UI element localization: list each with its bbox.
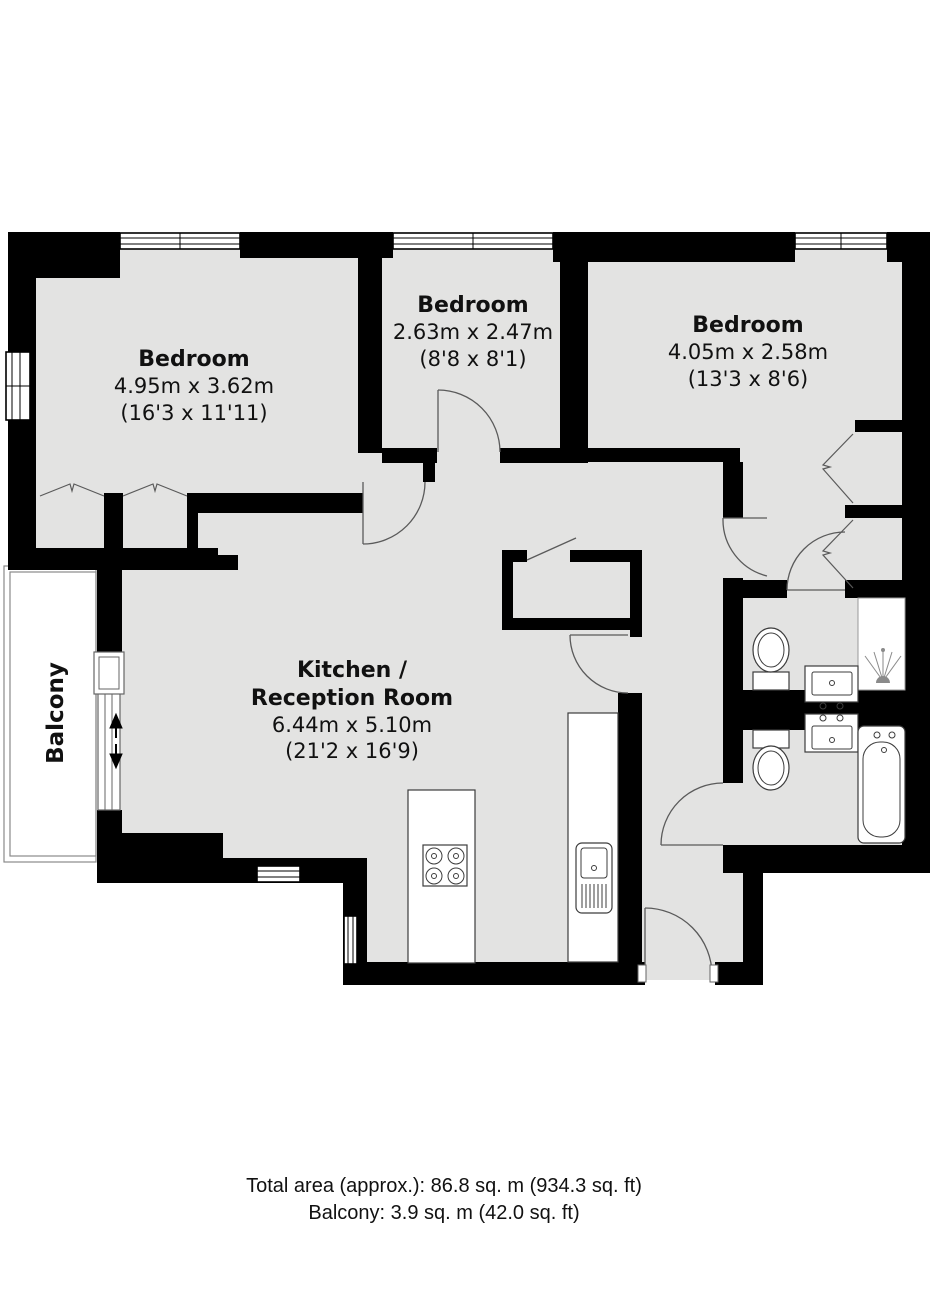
kitchen-sink-icon xyxy=(576,843,612,913)
footer: Total area (approx.): 86.8 sq. m (934.3 … xyxy=(246,1175,642,1224)
kitchen-counter xyxy=(568,713,618,962)
kitchen-name-line2: Reception Room xyxy=(251,686,453,711)
balcony-sliding-door xyxy=(94,652,124,810)
window-kitchen-bottom xyxy=(257,866,300,882)
window-top-1 xyxy=(120,233,240,249)
kitchen-dims-ft: (21'2 x 16'9) xyxy=(285,739,419,763)
bedroom-3-dims-m: 4.05m x 2.58m xyxy=(668,340,828,364)
bedroom-1-dims-ft: (16'3 x 11'11) xyxy=(120,401,267,425)
bedroom-3-dims-ft: (13'3 x 8'6) xyxy=(688,367,809,391)
window-top-2 xyxy=(393,233,553,249)
hob-icon xyxy=(423,845,467,886)
bathtub-icon xyxy=(858,726,905,843)
window-left-bedroom xyxy=(6,352,30,420)
balcony-label: Balcony xyxy=(43,662,69,764)
kitchen-name-line1: Kitchen / xyxy=(297,658,408,683)
sink-1-icon xyxy=(805,666,858,709)
total-area-text: Total area (approx.): 86.8 sq. m (934.3 … xyxy=(246,1175,642,1197)
toilet-2-icon xyxy=(753,730,789,790)
bedroom-1-dims-m: 4.95m x 3.62m xyxy=(114,374,274,398)
bedroom-2-dims-ft: (8'8 x 8'1) xyxy=(419,347,526,371)
kitchen-dims-m: 6.44m x 5.10m xyxy=(272,713,432,737)
sink-2-icon xyxy=(805,714,858,752)
bedroom-2-dims-m: 2.63m x 2.47m xyxy=(393,320,553,344)
window-top-3 xyxy=(795,233,887,249)
bedroom-1-name: Bedroom xyxy=(138,347,249,372)
floorplan-svg: Bedroom 4.95m x 3.62m (16'3 x 11'11) Bed… xyxy=(0,0,940,1301)
toilet-1-icon xyxy=(753,628,789,690)
bedroom-2-name: Bedroom xyxy=(417,293,528,318)
bedroom-3-name: Bedroom xyxy=(692,313,803,338)
balcony-area-text: Balcony: 3.9 sq. m (42.0 sq. ft) xyxy=(308,1202,579,1224)
window-kitchen-side xyxy=(344,916,357,964)
floorplan-page: Bedroom 4.95m x 3.62m (16'3 x 11'11) Bed… xyxy=(0,0,940,1301)
